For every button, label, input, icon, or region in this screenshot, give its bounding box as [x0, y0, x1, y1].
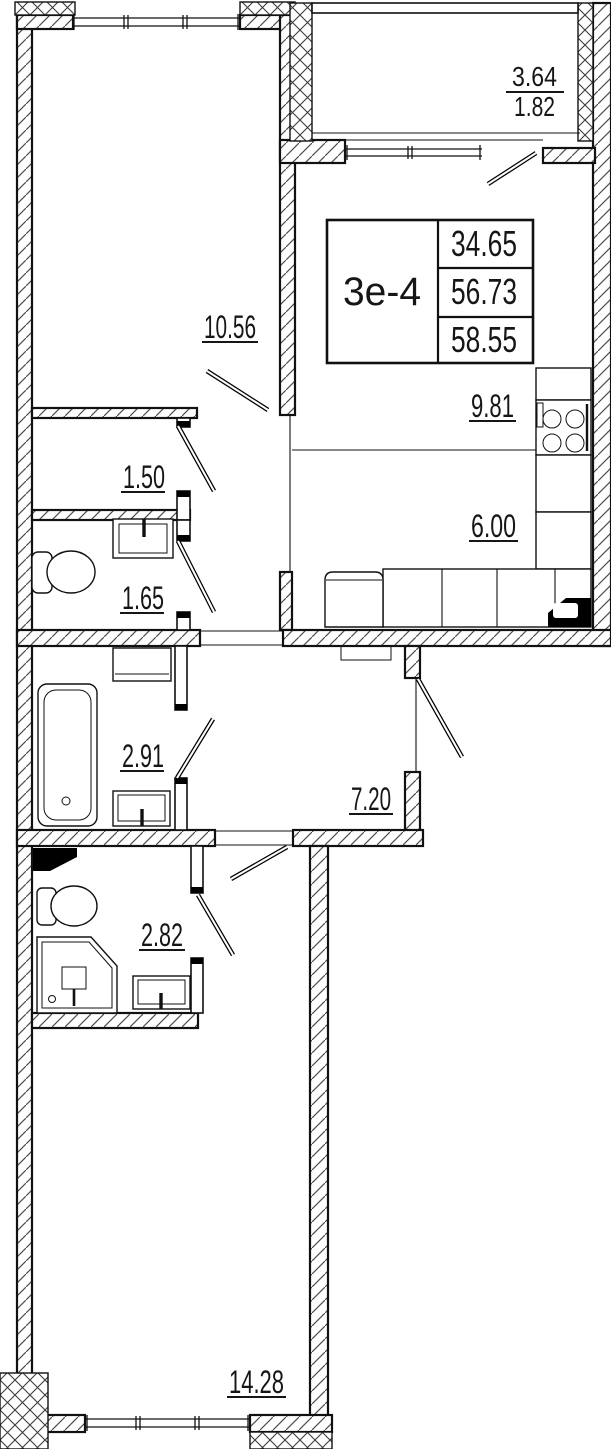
duct-icon [33, 848, 77, 871]
room-area-dining-zone: 6.00 [471, 508, 516, 544]
counter-cell [536, 455, 591, 512]
fridge-icon [325, 572, 383, 627]
door-bedroom-upper-icon [207, 371, 268, 410]
washing-machine-icon [113, 648, 171, 681]
stove-icon [536, 400, 591, 455]
counter-cell [536, 512, 591, 569]
door-bathroom-icon [177, 719, 213, 778]
room-area-wc: 1.65 [122, 580, 164, 616]
room-area-hallway: 7.20 [351, 781, 391, 817]
unit-living-area: 34.65 [451, 223, 517, 264]
toilet-icon [37, 886, 97, 926]
room-area-hall-small: 1.50 [123, 459, 165, 495]
room-area-bathroom: 2.91 [122, 738, 164, 774]
window-balcony-icon [345, 145, 482, 160]
balcony-area-reduced: 1.82 [514, 91, 555, 122]
floorplan-page: 3е-4 34.65 56.73 58.55 3.64 1.82 10.56 1… [0, 0, 611, 1449]
floor-plan-drawing: 3е-4 34.65 56.73 58.55 3.64 1.82 10.56 1… [0, 0, 611, 1449]
door-bedroom-lower-icon [231, 847, 287, 879]
hatched-walls [17, 3, 611, 1432]
window-top-icon [72, 14, 240, 30]
sink-icon [133, 976, 190, 1009]
bathroom-fixtures [38, 648, 171, 826]
door-hall-small-icon [178, 426, 214, 491]
unit-type-label: 3е-4 [343, 270, 421, 314]
door-balcony-icon [488, 153, 536, 184]
sink-icon [113, 519, 173, 558]
unit-apartment-area: 56.73 [451, 271, 517, 312]
room-area-bedroom-lower: 14.28 [229, 1364, 284, 1400]
window-bottom-icon [85, 1415, 250, 1431]
kitchen-fixtures [325, 368, 591, 627]
shower-tray-icon [37, 937, 117, 1013]
room-area-shower-room: 2.82 [141, 917, 183, 953]
toilet-icon [32, 551, 95, 593]
balcony-area-full: 3.64 [512, 61, 557, 92]
counter-cell [536, 368, 591, 400]
door-entrance-icon [416, 678, 462, 772]
door-shower-room-icon [198, 895, 233, 955]
bathtub-icon [38, 684, 97, 826]
door-wc-icon [178, 541, 214, 612]
title-block: 3е-4 34.65 56.73 58.55 [327, 220, 533, 363]
room-area-bedroom-upper: 10.56 [204, 309, 256, 345]
unit-total-area: 58.55 [451, 319, 517, 360]
sink-icon [113, 791, 170, 826]
room-area-kitchen-zone: 9.81 [471, 388, 514, 424]
balcony-area-label: 3.64 1.82 [506, 61, 564, 122]
